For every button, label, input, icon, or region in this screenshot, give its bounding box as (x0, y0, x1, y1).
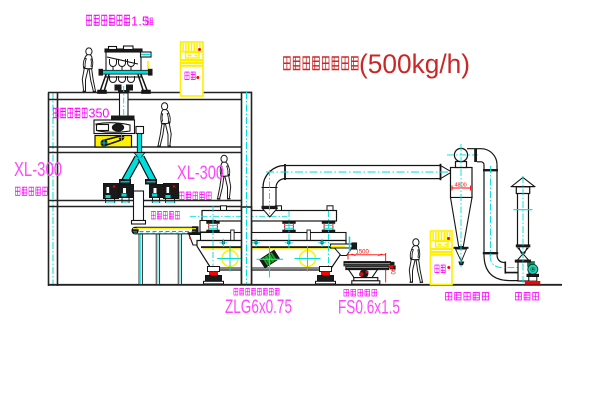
svg-text:XL-300: XL-300 (14, 159, 62, 181)
svg-text:(500kg/h): (500kg/h) (359, 49, 470, 79)
svg-text:350: 350 (89, 107, 110, 121)
svg-text:XL-300: XL-300 (177, 163, 224, 184)
svg-text:1500: 1500 (356, 250, 370, 256)
svg-text:FS0.6x1.5: FS0.6x1.5 (338, 296, 400, 318)
svg-text:ZLG6x0.75: ZLG6x0.75 (225, 296, 292, 318)
